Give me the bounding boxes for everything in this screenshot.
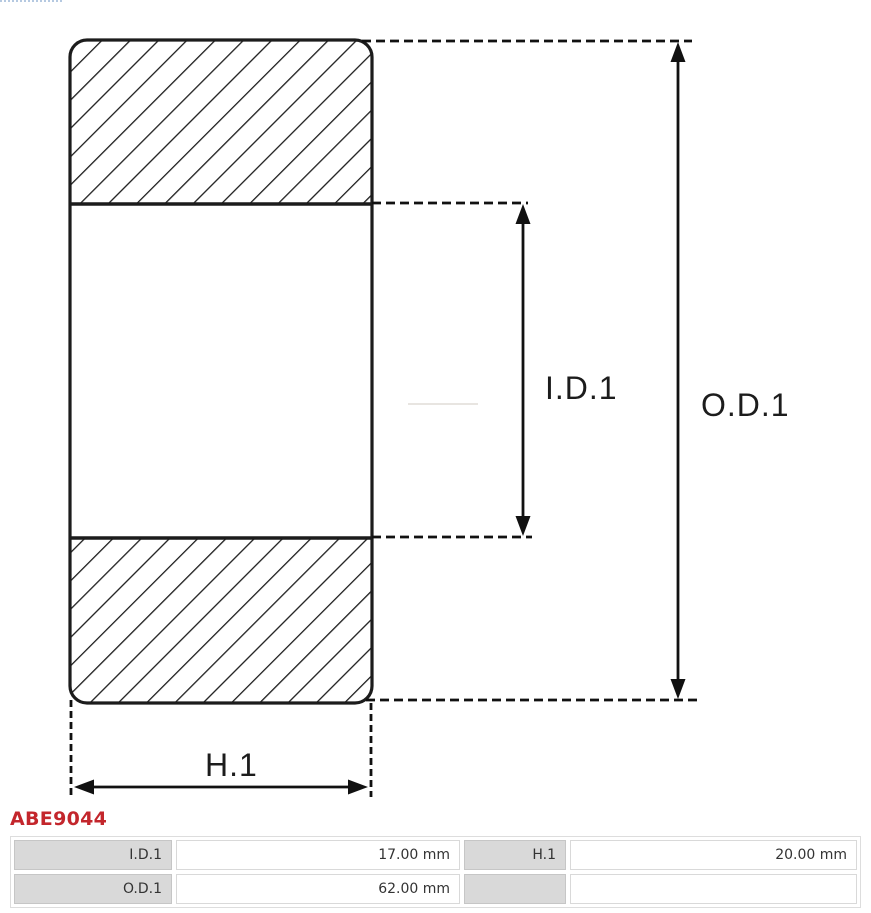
spec-label-od: O.D.1: [14, 874, 172, 904]
hatched-band-top: [70, 40, 372, 204]
spec-value-id: 17.00 mm: [176, 840, 460, 870]
bearing-diagram: I.D.1 O.D.1 H.1: [0, 0, 871, 806]
spec-value-empty: [570, 874, 857, 904]
spec-label-h: H.1: [464, 840, 566, 870]
bearing-cross-section: [70, 40, 372, 703]
id-dimension-arrow: [516, 204, 531, 536]
extension-lines: [362, 41, 702, 700]
spec-table: I.D.1 17.00 mm H.1 20.00 mm O.D.1 62.00 …: [10, 836, 861, 908]
spec-label-id: I.D.1: [14, 840, 172, 870]
id-dimension-label: I.D.1: [545, 370, 618, 406]
spec-label-empty: [464, 874, 566, 904]
od-dimension-label: O.D.1: [701, 387, 790, 423]
od-dimension-arrow: [671, 42, 686, 699]
h-dimension-label: H.1: [205, 747, 258, 783]
hatched-band-bottom: [70, 538, 372, 703]
product-code: ABE9044: [10, 808, 107, 830]
spec-value-h: 20.00 mm: [570, 840, 857, 870]
spec-value-od: 62.00 mm: [176, 874, 460, 904]
